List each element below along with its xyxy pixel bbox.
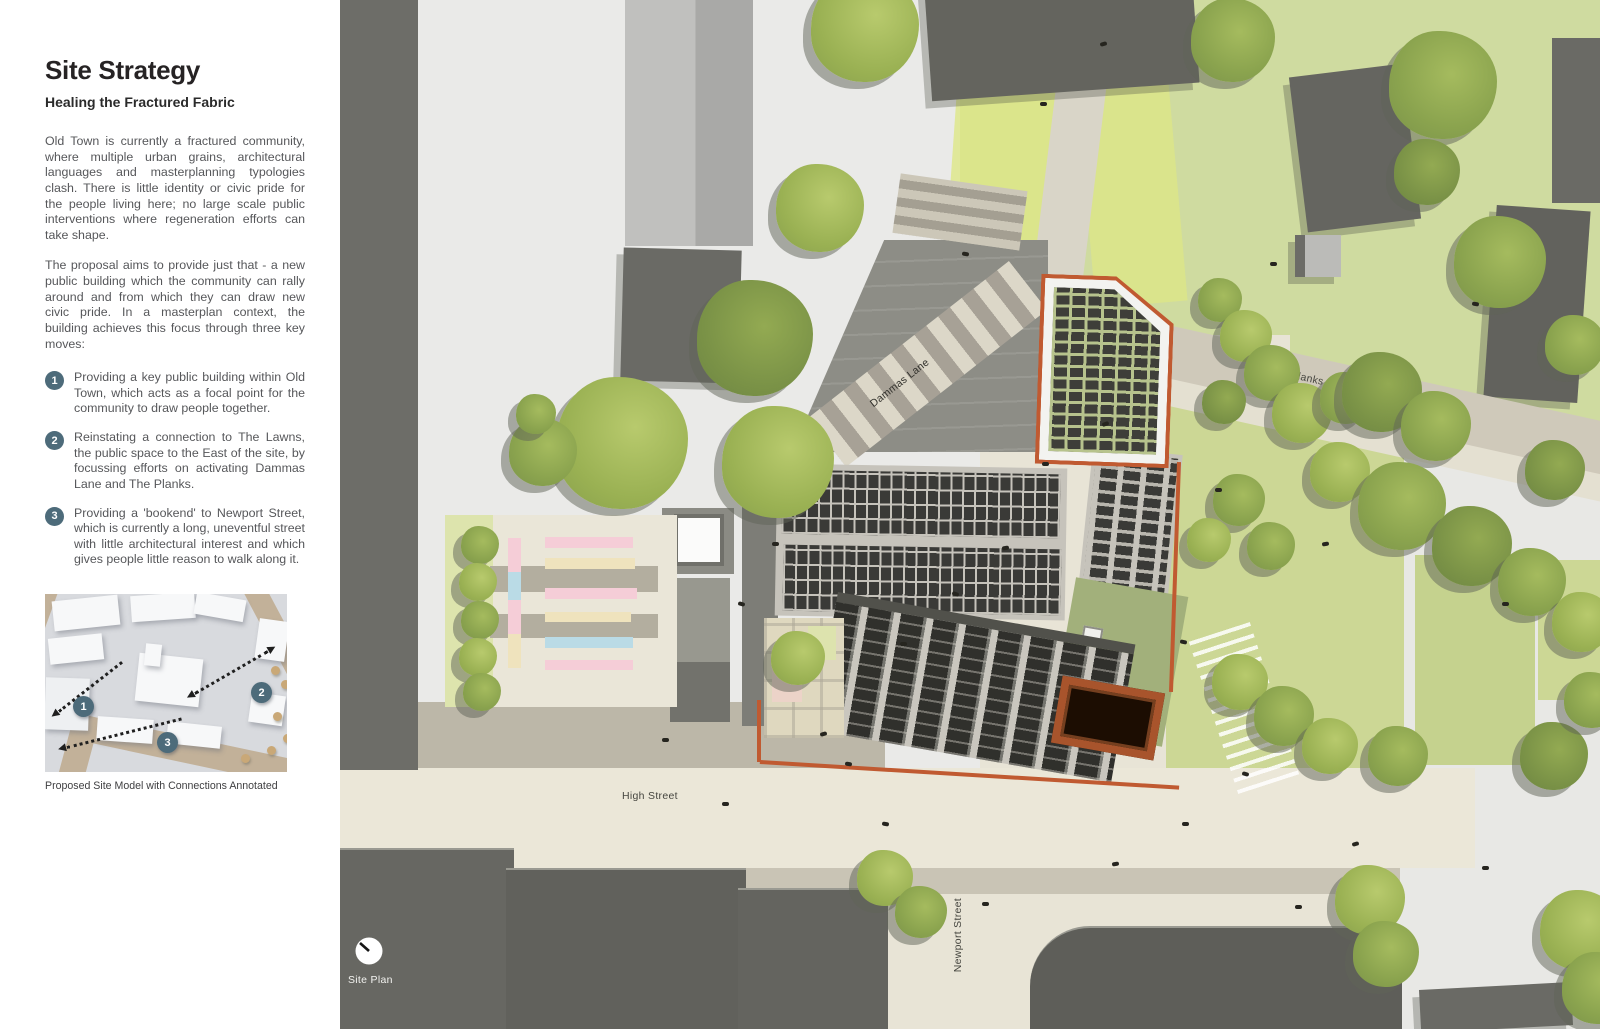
person-figure xyxy=(1352,841,1360,847)
north-arrow-icon xyxy=(354,936,384,966)
person-figure xyxy=(1242,771,1250,777)
person-figure xyxy=(1042,462,1049,466)
site-strategy-panel: Site Strategy Healing the Fractured Fabr… xyxy=(0,0,340,1029)
key-moves-list: 1 Providing a key public building within… xyxy=(45,370,305,568)
high-street-label: High Street xyxy=(622,790,678,802)
person-figure xyxy=(982,902,989,906)
model-building xyxy=(130,594,196,622)
model-badge-2: 2 xyxy=(251,682,272,703)
person-figure xyxy=(1182,822,1189,826)
move-number-badge: 2 xyxy=(45,431,64,450)
page-subtitle: Healing the Fractured Fabric xyxy=(45,94,305,110)
person-figure xyxy=(882,821,890,826)
person-figure xyxy=(722,802,729,806)
model-tree xyxy=(267,746,276,755)
person-figure xyxy=(845,761,853,766)
key-move-item-3: 3 Providing a 'bookend' to Newport Stree… xyxy=(45,506,305,569)
person-figure xyxy=(1295,905,1302,909)
person-figure xyxy=(1472,301,1480,306)
site-model-photo: 1 2 3 xyxy=(45,594,287,772)
move-number-badge: 3 xyxy=(45,507,64,526)
person-figure xyxy=(820,731,828,737)
person-figure xyxy=(772,542,779,546)
model-tree xyxy=(273,712,282,721)
model-tree xyxy=(281,680,287,689)
person-figure xyxy=(738,601,746,607)
model-proposed-tower xyxy=(144,643,162,667)
model-building xyxy=(96,716,154,744)
model-tree xyxy=(283,734,287,743)
person-figure xyxy=(1322,541,1330,546)
person-figure xyxy=(1180,639,1188,644)
person-figure xyxy=(952,591,960,597)
person-figure xyxy=(1215,488,1222,492)
key-move-item-2: 2 Reinstating a connection to The Lawns,… xyxy=(45,430,305,493)
move-text: Providing a 'bookend' to Newport Street,… xyxy=(74,506,305,569)
model-tree xyxy=(241,754,250,763)
figure-caption: Proposed Site Model with Connections Ann… xyxy=(45,780,305,792)
key-move-item-1: 1 Providing a key public building within… xyxy=(45,370,305,417)
model-building xyxy=(193,594,246,622)
site-plan-map: The Planks Dammas Lane xyxy=(340,0,1600,1029)
person-figure xyxy=(1102,421,1110,427)
person-figure xyxy=(1100,41,1108,47)
presentation-board: Site Strategy Healing the Fractured Fabr… xyxy=(0,0,1600,1029)
person-figure xyxy=(1482,866,1489,870)
newport-street-label: Newport Street xyxy=(952,898,964,972)
move-text: Reinstating a connection to The Lawns, t… xyxy=(74,430,305,493)
model-tree xyxy=(271,666,280,675)
site-plan-label: Site Plan xyxy=(348,974,393,986)
person-figure xyxy=(900,642,907,646)
person-figure xyxy=(962,251,970,256)
proposal-paragraph: The proposal aims to provide just that -… xyxy=(45,258,305,352)
intro-paragraph: Old Town is currently a fractured commun… xyxy=(45,134,305,243)
person-figure xyxy=(1270,262,1277,266)
move-text: Providing a key public building within O… xyxy=(74,370,305,417)
person-figure xyxy=(1040,102,1047,106)
model-badge-3: 3 xyxy=(157,732,178,753)
model-building xyxy=(52,595,121,632)
person-figure xyxy=(662,738,669,742)
person-figure xyxy=(1002,545,1010,550)
page-title: Site Strategy xyxy=(45,55,305,86)
move-number-badge: 1 xyxy=(45,371,64,390)
person-figure xyxy=(1502,602,1509,606)
model-badge-1: 1 xyxy=(73,696,94,717)
people-layer xyxy=(340,0,1600,1029)
person-figure xyxy=(1112,861,1120,866)
model-building xyxy=(48,633,104,665)
